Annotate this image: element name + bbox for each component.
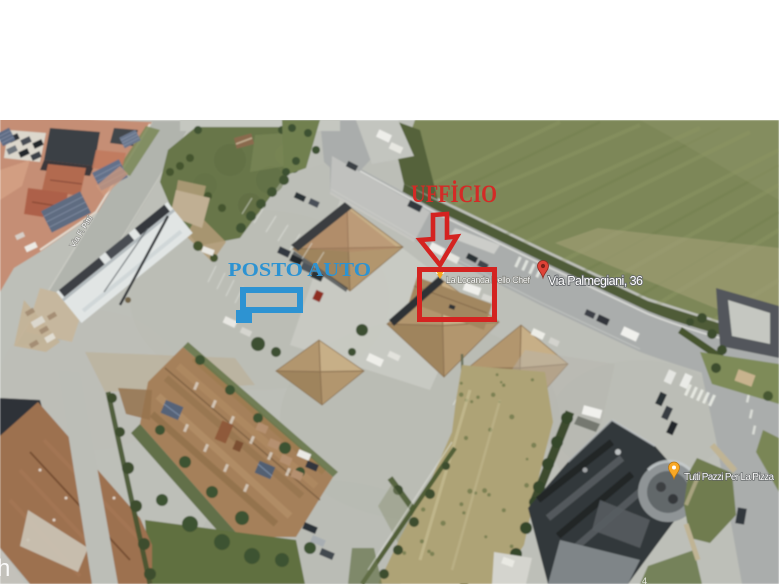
svg-text:h: h (0, 555, 10, 582)
svg-text:4: 4 (642, 576, 647, 584)
svg-text:Via Palmegiani, 36: Via Palmegiani, 36 (548, 274, 643, 288)
svg-text:POSTO AUTO: POSTO AUTO (228, 259, 371, 281)
svg-text:Tutti Pazzi Per La Pizza: Tutti Pazzi Per La Pizza (684, 472, 774, 483)
svg-text:La Locanda Dello Chef: La Locanda Dello Chef (446, 275, 530, 285)
svg-text:UFFİCIO: UFFİCIO (411, 180, 497, 208)
